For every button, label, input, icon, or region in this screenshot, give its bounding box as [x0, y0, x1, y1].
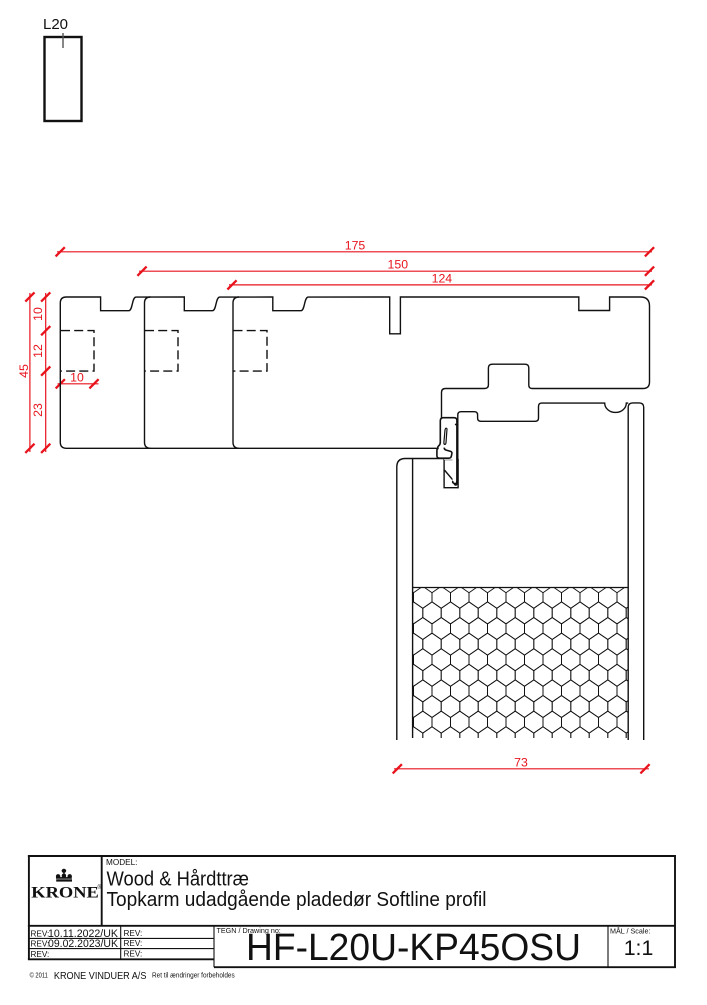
svg-text:1:1: 1:1 [624, 936, 654, 960]
svg-text:© 2011: © 2011 [30, 972, 48, 980]
svg-text:10: 10 [31, 307, 45, 321]
svg-text:REV:: REV: [31, 929, 50, 938]
svg-text:MÅL / Scale:: MÅL / Scale: [610, 926, 650, 935]
svg-text:23: 23 [31, 403, 45, 417]
svg-text:REV:: REV: [124, 939, 143, 948]
svg-text:L20: L20 [43, 16, 68, 33]
svg-text:MODEL:: MODEL: [106, 858, 137, 867]
svg-text:12: 12 [31, 344, 45, 358]
svg-text:150: 150 [388, 258, 409, 272]
svg-text:10: 10 [70, 370, 84, 384]
svg-text:09.02.2023/UK: 09.02.2023/UK [48, 938, 119, 950]
svg-text:REV:: REV: [31, 950, 50, 959]
svg-text:®: ® [98, 884, 103, 891]
svg-text:REV:: REV: [124, 929, 143, 938]
svg-text:175: 175 [345, 238, 366, 252]
svg-text:45: 45 [17, 364, 31, 378]
svg-text:Wood & Hårdttræ: Wood & Hårdttræ [107, 869, 250, 891]
svg-text:HF-L20U-KP45OSU: HF-L20U-KP45OSU [246, 927, 581, 969]
svg-text:124: 124 [432, 272, 453, 286]
svg-text:Ret til ændringer forbeholdes: Ret til ændringer forbeholdes [152, 971, 235, 980]
svg-text:KRONE VINDUER A/S: KRONE VINDUER A/S [54, 970, 146, 982]
svg-text:KRONE: KRONE [31, 885, 99, 902]
svg-text:73: 73 [514, 755, 528, 769]
svg-text:Topkarm udadgående pladedør So: Topkarm udadgående pladedør Softline pro… [107, 889, 487, 911]
svg-text:REV:: REV: [31, 940, 50, 949]
svg-text:REV:: REV: [124, 950, 143, 959]
